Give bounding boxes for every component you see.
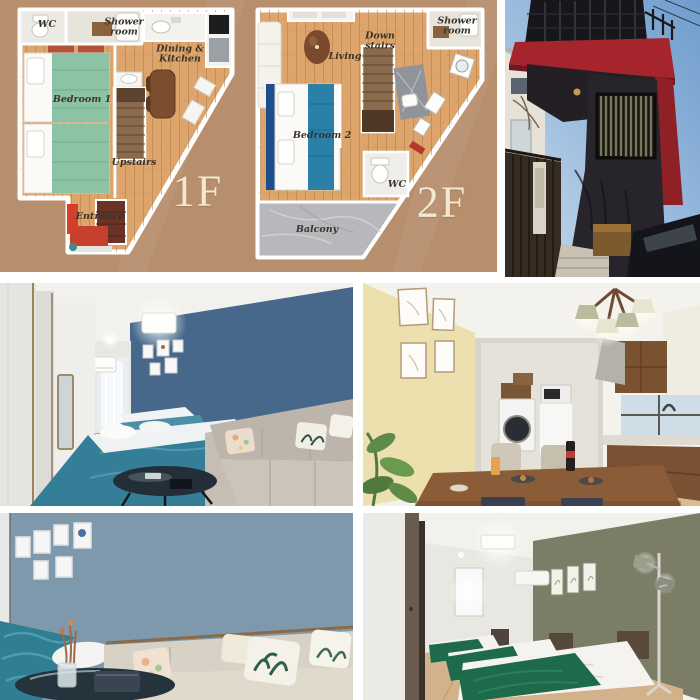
leaf-pillow bbox=[308, 629, 352, 669]
shower-room-2f bbox=[428, 10, 482, 48]
living-closeup-photo[interactable] bbox=[0, 513, 353, 700]
bottle bbox=[566, 441, 575, 471]
exterior-graphic bbox=[505, 0, 700, 277]
stairs-1f bbox=[114, 72, 145, 160]
beds-1f bbox=[24, 44, 109, 193]
ceiling-light bbox=[481, 535, 515, 549]
white-pillow bbox=[328, 414, 353, 439]
stairs-2f bbox=[362, 46, 394, 132]
shower-room-1f bbox=[66, 10, 142, 44]
small-light bbox=[106, 336, 114, 344]
botanical-pillow bbox=[295, 422, 328, 451]
solar-panel bbox=[525, 0, 647, 44]
bedroom-living-graphic bbox=[0, 283, 353, 506]
juice-glass bbox=[491, 457, 500, 475]
frame-art bbox=[78, 529, 86, 537]
bedroom-living-photo[interactable] bbox=[0, 283, 353, 506]
counter bbox=[603, 435, 700, 445]
dining-table-1f bbox=[146, 70, 175, 118]
mirror bbox=[58, 375, 73, 449]
triple-bedroom-photo[interactable] bbox=[363, 513, 700, 700]
botanical-pillow bbox=[243, 636, 301, 687]
door-frame bbox=[363, 513, 425, 700]
triple-bedroom-graphic bbox=[363, 513, 700, 700]
floorplan-graphic bbox=[0, 0, 497, 272]
chair-front bbox=[481, 497, 525, 506]
wc-room-1f bbox=[20, 10, 66, 44]
chair-front bbox=[561, 498, 603, 506]
dining-kitchen-photo[interactable] bbox=[363, 283, 700, 506]
air-conditioner bbox=[515, 571, 549, 585]
exterior-photo[interactable] bbox=[505, 0, 700, 277]
entrance-area bbox=[67, 200, 126, 251]
ceiling-light bbox=[142, 313, 176, 333]
washing-machine bbox=[499, 373, 535, 451]
floorplan-image[interactable]: WC Shower room Dining & Kitchen Bedroom … bbox=[0, 0, 497, 272]
photo-collage: WC Shower room Dining & Kitchen Bedroom … bbox=[0, 0, 700, 700]
living-closeup-graphic bbox=[0, 513, 353, 700]
dining-kitchen-graphic bbox=[363, 283, 700, 506]
floral-pillow bbox=[224, 427, 255, 455]
bed-2f bbox=[266, 84, 340, 190]
